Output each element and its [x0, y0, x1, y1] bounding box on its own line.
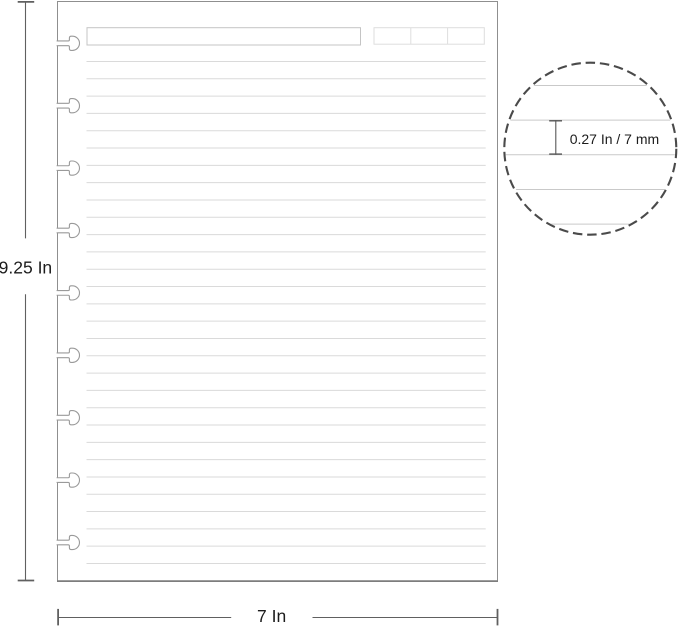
svg-text:9.25 In: 9.25 In	[0, 258, 52, 278]
svg-text:0.27 In / 7 mm: 0.27 In / 7 mm	[570, 131, 659, 147]
svg-text:7 In: 7 In	[257, 606, 286, 626]
